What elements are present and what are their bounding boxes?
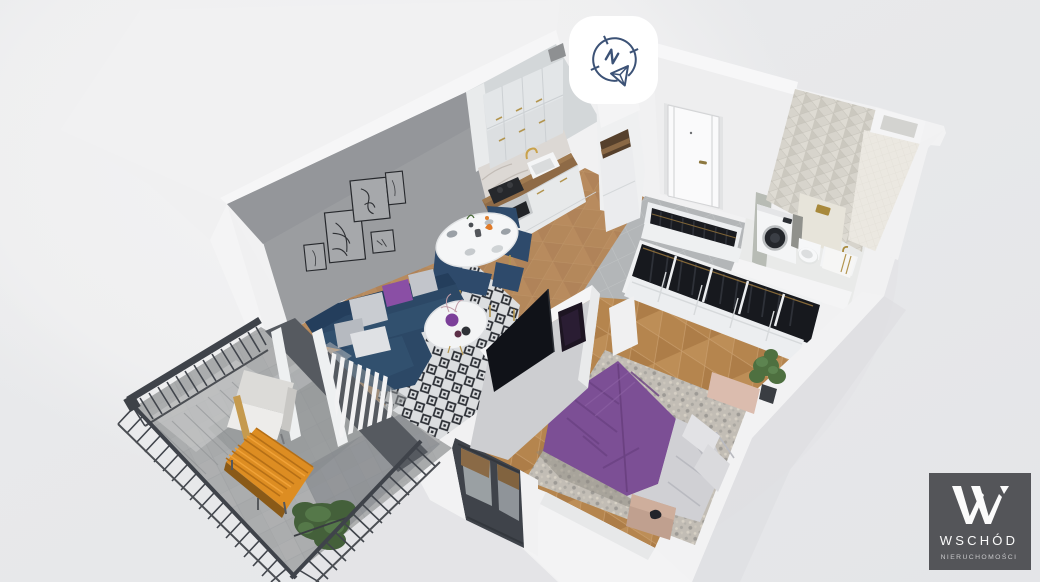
svg-text:NIERUCHOMOŚCI: NIERUCHOMOŚCI (941, 552, 1018, 561)
svg-text:WSCHÓD: WSCHÓD (940, 533, 1018, 548)
